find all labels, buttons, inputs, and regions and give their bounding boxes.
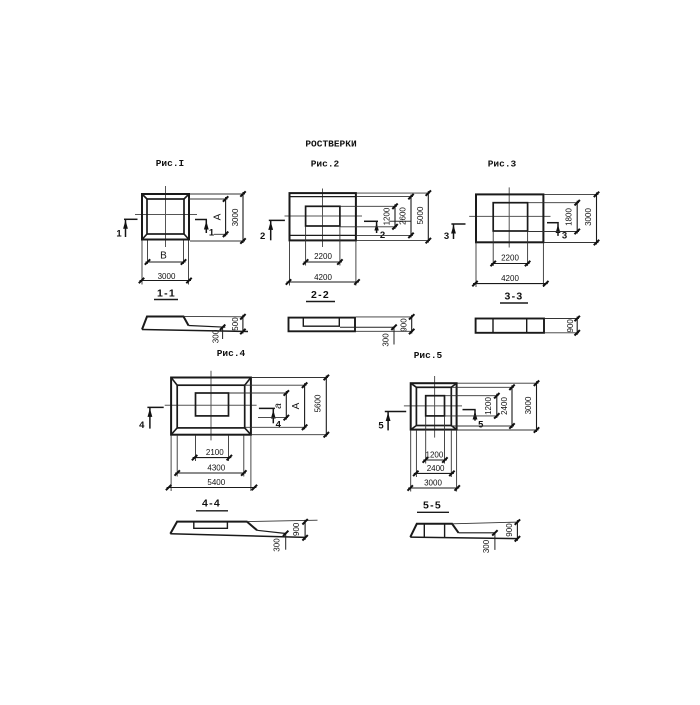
svg-text:300: 300 — [382, 333, 391, 347]
svg-text:1200: 1200 — [426, 451, 444, 460]
svg-text:1: 1 — [209, 228, 215, 239]
svg-text:5400: 5400 — [207, 478, 225, 487]
svg-text:В: В — [160, 251, 167, 262]
svg-text:1800: 1800 — [564, 208, 573, 226]
svg-text:4200: 4200 — [314, 273, 332, 282]
svg-text:300: 300 — [482, 539, 491, 553]
svg-text:1200: 1200 — [484, 397, 493, 415]
svg-text:3: 3 — [444, 231, 449, 242]
svg-text:500: 500 — [231, 317, 240, 331]
svg-text:5: 5 — [378, 421, 384, 432]
svg-text:2: 2 — [260, 231, 265, 242]
svg-text:А: А — [212, 213, 223, 220]
svg-text:2200: 2200 — [501, 254, 519, 263]
svg-text:3-3: 3-3 — [504, 291, 523, 303]
svg-text:3000: 3000 — [524, 396, 533, 414]
svg-text:А: А — [291, 402, 302, 409]
svg-text:Рис.4: Рис.4 — [217, 348, 246, 359]
svg-text:5-5: 5-5 — [423, 500, 442, 512]
svg-text:4300: 4300 — [207, 464, 225, 473]
svg-text:1: 1 — [116, 229, 122, 240]
svg-text:Рис.I: Рис.I — [156, 158, 185, 169]
svg-text:2400: 2400 — [427, 464, 445, 473]
svg-text:300: 300 — [212, 329, 221, 343]
svg-text:1-1: 1-1 — [157, 288, 176, 300]
svg-text:4: 4 — [276, 420, 282, 431]
svg-text:3000: 3000 — [584, 208, 593, 226]
svg-text:2400: 2400 — [500, 397, 509, 415]
svg-text:5000: 5000 — [416, 206, 425, 224]
svg-text:5600: 5600 — [314, 394, 323, 412]
svg-text:Рис.3: Рис.3 — [488, 159, 517, 170]
svg-text:300: 300 — [273, 538, 282, 552]
svg-text:а: а — [273, 403, 284, 409]
svg-text:2-2: 2-2 — [311, 289, 330, 301]
svg-text:Рис.5: Рис.5 — [414, 350, 443, 361]
svg-text:2600: 2600 — [399, 207, 408, 225]
svg-text:Рис.2: Рис.2 — [311, 159, 340, 170]
svg-text:900: 900 — [505, 523, 514, 537]
svg-text:4-4: 4-4 — [202, 498, 221, 510]
svg-text:3: 3 — [562, 231, 567, 242]
svg-text:2200: 2200 — [314, 252, 332, 261]
svg-text:3000: 3000 — [231, 208, 240, 226]
svg-text:3000: 3000 — [158, 272, 176, 281]
svg-text:900: 900 — [399, 318, 408, 332]
svg-text:5: 5 — [478, 420, 484, 431]
svg-text:РОСТВЕРКИ: РОСТВЕРКИ — [305, 139, 357, 150]
svg-text:4200: 4200 — [501, 274, 519, 283]
svg-text:900: 900 — [566, 319, 575, 333]
svg-text:900: 900 — [292, 522, 301, 536]
svg-text:4: 4 — [139, 420, 145, 431]
svg-text:2100: 2100 — [206, 448, 224, 457]
svg-text:3000: 3000 — [424, 479, 442, 488]
svg-text:1200: 1200 — [383, 207, 392, 225]
